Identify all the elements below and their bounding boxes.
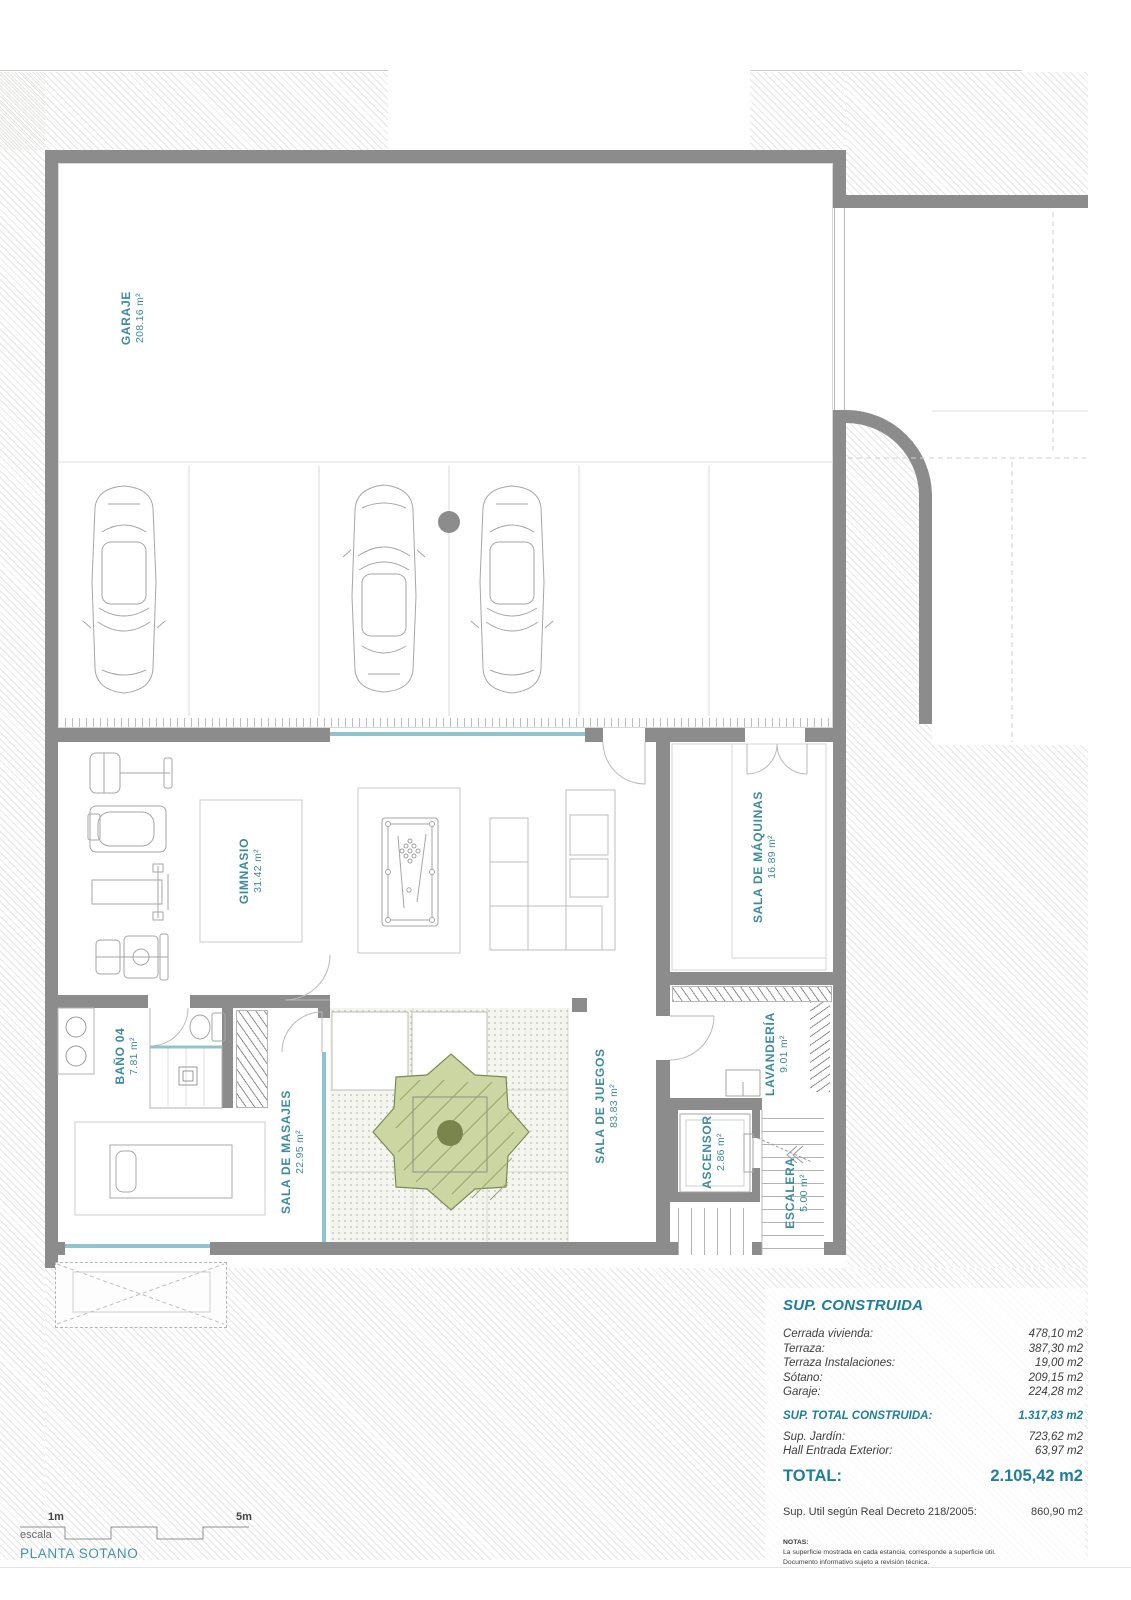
row-label: SUP. TOTAL CONSTRUIDA: (783, 1409, 932, 1424)
double-door-icon (747, 744, 807, 774)
car-icon (83, 486, 165, 693)
util-row: Sup. Util según Real Decreto 218/2005: 8… (783, 1505, 1083, 1520)
notes-title: NOTAS: (783, 1538, 1083, 1548)
room-label-garaje: GARAJE 208.16 m² (119, 291, 147, 345)
notes: NOTAS: La superficie mostrada en cada es… (783, 1538, 1083, 1568)
table-row: Sótano: 209,15 m2 (783, 1371, 1083, 1386)
page-title: PLANTA SOTANO (20, 1546, 138, 1561)
row-value: 2.105,42 m2 (990, 1469, 1083, 1484)
room-area: 31.42 m² (252, 838, 265, 904)
car-icon (343, 485, 425, 692)
room-label-ascensor: ASCENSOR 2.86 m² (700, 1115, 728, 1189)
scale-bar (20, 1527, 249, 1539)
row-value: 224,28 m2 (1029, 1385, 1083, 1400)
area-summary-table: SUP. CONSTRUIDA Cerrada vivienda: 478,10… (783, 1297, 1083, 1567)
room-area: 208.16 m² (134, 291, 147, 345)
room-label-bano: BAÑO 04 7.81 m² (113, 1028, 141, 1085)
room-label-gimnasio: GIMNASIO 31.42 m² (237, 838, 265, 904)
row-label: Terraza Instalaciones: (783, 1356, 895, 1371)
summary-title: SUP. CONSTRUIDA (783, 1297, 1083, 1314)
room-name: SALA DE MASAJES (279, 1090, 294, 1214)
room-label-maquinas: SALA DE MÁQUINAS 16.89 m² (751, 791, 779, 923)
massage-table-icon (75, 1122, 265, 1215)
table-row: Cerrada vivienda: 478,10 m2 (783, 1327, 1083, 1342)
row-label: Cerrada vivienda: (783, 1327, 873, 1342)
toilet-icon (190, 1015, 210, 1039)
room-label-lavanderia: LAVANDERÍA 9.01 m² (763, 1012, 791, 1096)
row-label: TOTAL: (783, 1469, 842, 1484)
row-label: Sup. Util según Real Decreto 218/2005: (783, 1505, 977, 1520)
row-value: 860,90 m2 (1031, 1505, 1083, 1520)
room-area: 9.01 m² (778, 1012, 791, 1096)
row-value: 723,62 m2 (1029, 1430, 1083, 1445)
skylight-x (57, 1264, 224, 1324)
room-name: GARAJE (119, 291, 134, 345)
sofa-icon (490, 790, 615, 950)
sink-icon (66, 1017, 86, 1037)
room-area: 83.83 m² (608, 1048, 621, 1163)
table-row: Terraza Instalaciones: 19,00 m2 (783, 1356, 1083, 1371)
gym-equipment-icon (88, 753, 172, 980)
room-label-juegos: SALA DE JUEGOS 83.83 m² (593, 1048, 621, 1163)
row-value: 209,15 m2 (1029, 1371, 1083, 1386)
row-value: 1.317,83 m2 (1018, 1409, 1083, 1424)
room-area: 5.00 m² (798, 1157, 811, 1229)
room-label-escalera: ESCALERA 5.00 m² (783, 1157, 811, 1229)
sink-icon (66, 1046, 86, 1066)
toilet-icon (212, 1013, 225, 1041)
vanity (58, 1008, 94, 1074)
notes-line: Documento informativo sujeto a revisión … (783, 1558, 1083, 1568)
table-row: Garaje: 224,28 m2 (783, 1385, 1083, 1400)
billiard-table-icon (358, 788, 460, 953)
scale-mark-5m: 5m (236, 1511, 252, 1523)
row-value: 387,30 m2 (1029, 1342, 1083, 1357)
room-area: 2.86 m² (715, 1115, 728, 1189)
tree-icon (373, 1054, 529, 1210)
washing-machine-icon (726, 1070, 760, 1096)
room-name: SALA DE JUEGOS (593, 1048, 608, 1163)
row-label: Terraza: (783, 1342, 825, 1357)
scale-mark-1m: 1m (48, 1511, 64, 1523)
car-icon (471, 486, 553, 693)
table-row: Terraza: 387,30 m2 (783, 1342, 1083, 1357)
room-area: 7.81 m² (128, 1028, 141, 1085)
table-row: Sup. Jardín: 723,62 m2 (783, 1430, 1083, 1445)
row-label: Sótano: (783, 1371, 823, 1386)
scale-label: escala (20, 1529, 52, 1541)
room-label-masajes: SALA DE MASAJES 22.95 m² (279, 1090, 307, 1214)
room-name: SALA DE MÁQUINAS (751, 791, 766, 923)
row-value: 478,10 m2 (1029, 1327, 1083, 1342)
row-label: Garaje: (783, 1385, 821, 1400)
room-name: GIMNASIO (237, 838, 252, 904)
room-name: ASCENSOR (700, 1115, 715, 1189)
parking-dividers (189, 466, 709, 716)
driveway-guides (848, 212, 1086, 742)
room-name: LAVANDERÍA (763, 1012, 778, 1096)
floor-plan: GARAJE 208.16 m² GIMNASIO 31.42 m² SALA … (0, 0, 1131, 1600)
room-name: BAÑO 04 (113, 1028, 128, 1085)
notes-line: La superficie mostrada en cada estancia,… (783, 1548, 1083, 1558)
room-name: ESCALERA (783, 1157, 798, 1229)
subtotal-row: SUP. TOTAL CONSTRUIDA: 1.317,83 m2 (783, 1409, 1083, 1424)
total-row: TOTAL: 2.105,42 m2 (783, 1469, 1083, 1484)
column-icon (438, 511, 460, 533)
table-row: Hall Entrada Exterior: 63,97 m2 (783, 1444, 1083, 1459)
row-value: 63,97 m2 (1035, 1444, 1083, 1459)
row-label: Sup. Jardín: (783, 1430, 845, 1445)
row-label: Hall Entrada Exterior: (783, 1444, 892, 1459)
room-area: 22.95 m² (294, 1090, 307, 1214)
bathroom-fixtures (58, 1008, 225, 1108)
row-value: 19,00 m2 (1035, 1356, 1083, 1371)
room-area: 16.89 m² (766, 791, 779, 923)
